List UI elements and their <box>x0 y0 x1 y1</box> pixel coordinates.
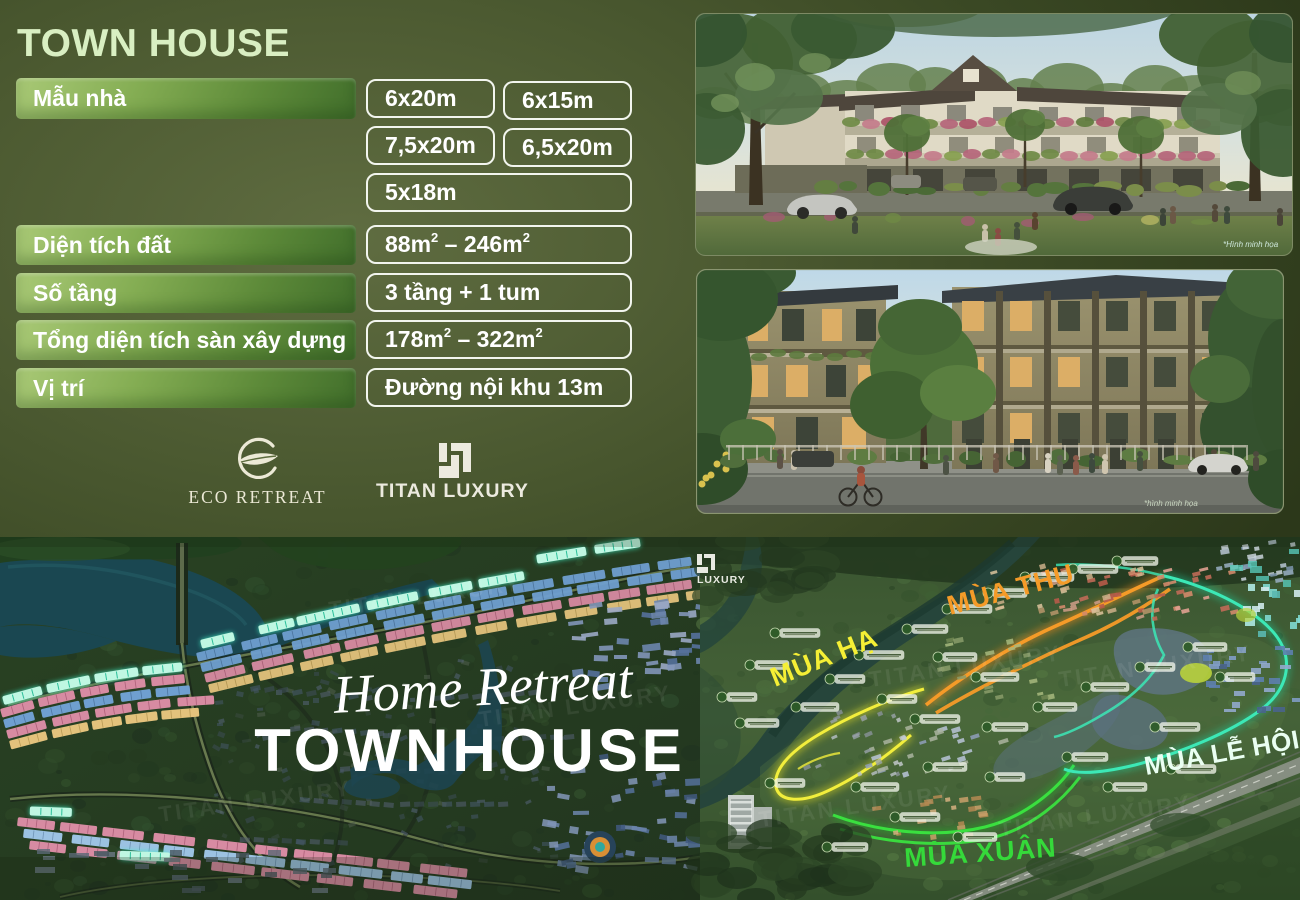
svg-text:*hình minh họa: *hình minh họa <box>1144 499 1198 508</box>
svg-text:LUXURY: LUXURY <box>697 574 746 586</box>
svg-text:*Hình minh họa: *Hình minh họa <box>1223 240 1279 249</box>
svg-text:TOWNHOUSE: TOWNHOUSE <box>254 717 686 784</box>
